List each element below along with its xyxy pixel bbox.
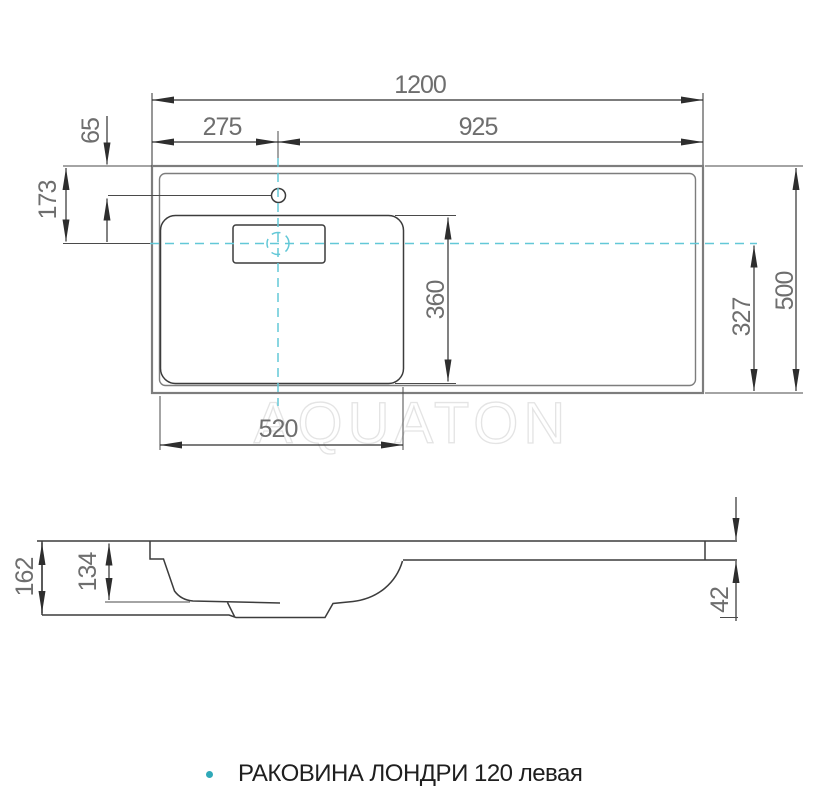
dim-label-173: 173 [34,181,62,220]
dim-label-520: 520 [259,415,298,443]
bullet-icon [206,771,213,778]
basin-outline [161,216,404,384]
countertop-outline [152,166,703,393]
dim-label-162: 162 [11,558,39,597]
dim-label-925: 925 [459,113,498,141]
dim-label-500: 500 [771,272,799,311]
spec-sheet-page: { "caption": { "text": "РАКОВИНА ЛОНДРИ … [0,0,814,800]
dimension-65: 65 [77,116,107,242]
dimension-275: 275 [152,113,278,142]
dimension-162: 162 [11,543,42,613]
dimension-500: 500 [771,168,799,391]
dim-label-275: 275 [203,113,242,141]
dimension-1200: 1200 [152,71,703,100]
dim-label-65: 65 [77,118,105,144]
dim-label-327: 327 [728,298,756,337]
dimension-360: 360 [422,218,450,382]
dimension-925: 925 [278,113,703,142]
dim-label-1200: 1200 [394,71,446,99]
countertop-inner-rim [160,174,696,386]
dimension-42: 42 [706,497,738,621]
dim-label-134: 134 [74,552,102,592]
dimension-173: 173 [34,168,66,242]
side-view [37,541,737,618]
watermark-text: AQUATON [254,391,570,456]
dim-label-42: 42 [706,587,734,613]
technical-drawing: AQUATON 1200 275 925 [0,0,814,750]
dim-label-360: 360 [422,281,450,320]
caption-row: РАКОВИНА ЛОНДРИ 120 левая [0,757,814,791]
product-title: РАКОВИНА ЛОНДРИ 120 левая [238,760,582,788]
top-view [108,166,703,393]
dimension-134: 134 [74,544,109,601]
bowl-inner-wall [150,541,280,603]
dimension-327: 327 [728,246,756,392]
